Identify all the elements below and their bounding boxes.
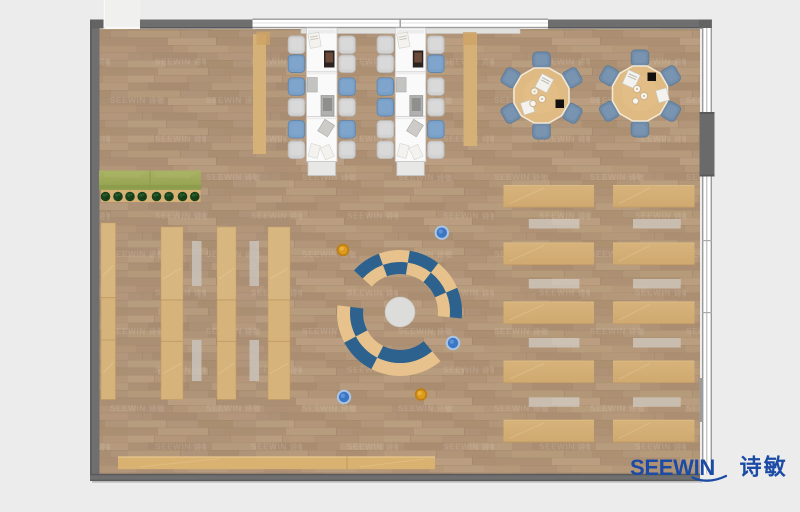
- svg-text:SEEWIN: SEEWIN: [630, 455, 715, 480]
- svg-text:诗敏: 诗敏: [740, 455, 788, 480]
